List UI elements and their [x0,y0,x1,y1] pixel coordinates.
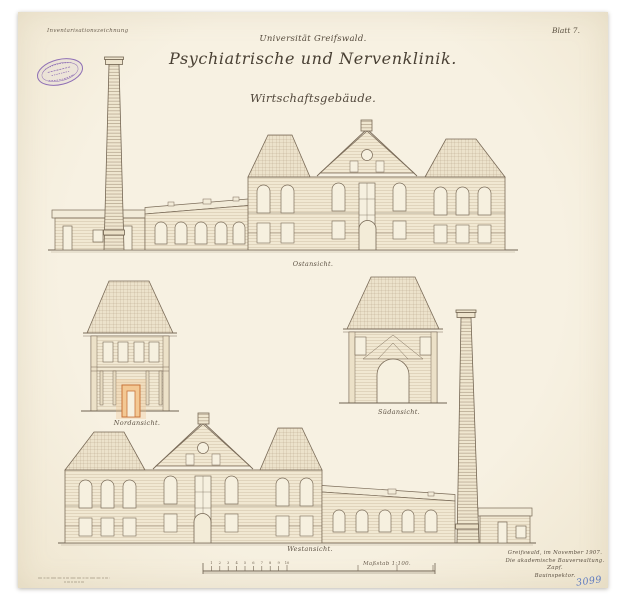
main-title: Psychiatrische und Nervenklinik. [18,49,608,68]
scan-background: 1 2 3 4 5 6 7 8 9 10 [0,0,623,601]
tick-label-8: 8 [269,561,272,565]
elevation-east-drawing [48,57,518,252]
caption-north-elevation: Nordansicht. [114,419,160,427]
signature-title: Bauinspektor. [535,573,576,579]
caption-west-elevation: Westansicht. [287,545,333,553]
tick-label-2: 2 [219,561,221,565]
caption-south-elevation: Südansicht. [378,408,420,416]
signature-office: Die akademische Bauverwaltung. [506,558,605,564]
tick-label-1: 1 [210,561,212,565]
tick-label-9: 9 [277,561,280,565]
chimney-right [456,310,480,543]
caption-east-elevation: Ostansicht. [293,260,334,268]
subtitle: Wirtschaftsgebäude. [18,91,608,105]
highlighted-portal [116,379,146,419]
tick-label-5: 5 [244,561,247,565]
scale-label: Maßstab 1:100. [363,561,411,567]
signature-place-date: Greifswald, im November 1907. [508,550,602,556]
chimney-left [104,57,125,250]
tick-label-7: 7 [261,561,264,565]
elevation-south-drawing [339,277,447,403]
university-title: Universität Greifswald. [18,34,608,44]
signature-name: Zapf. [547,565,563,571]
tick-label-4: 4 [235,561,238,565]
printer-imprint-lines [38,578,110,582]
paper-sheet: 1 2 3 4 5 6 7 8 9 10 [18,12,608,588]
tick-label-3: 3 [227,561,230,565]
tick-label-6: 6 [252,561,255,565]
tick-label-10: 10 [285,561,290,565]
elevation-north-drawing [81,281,179,419]
